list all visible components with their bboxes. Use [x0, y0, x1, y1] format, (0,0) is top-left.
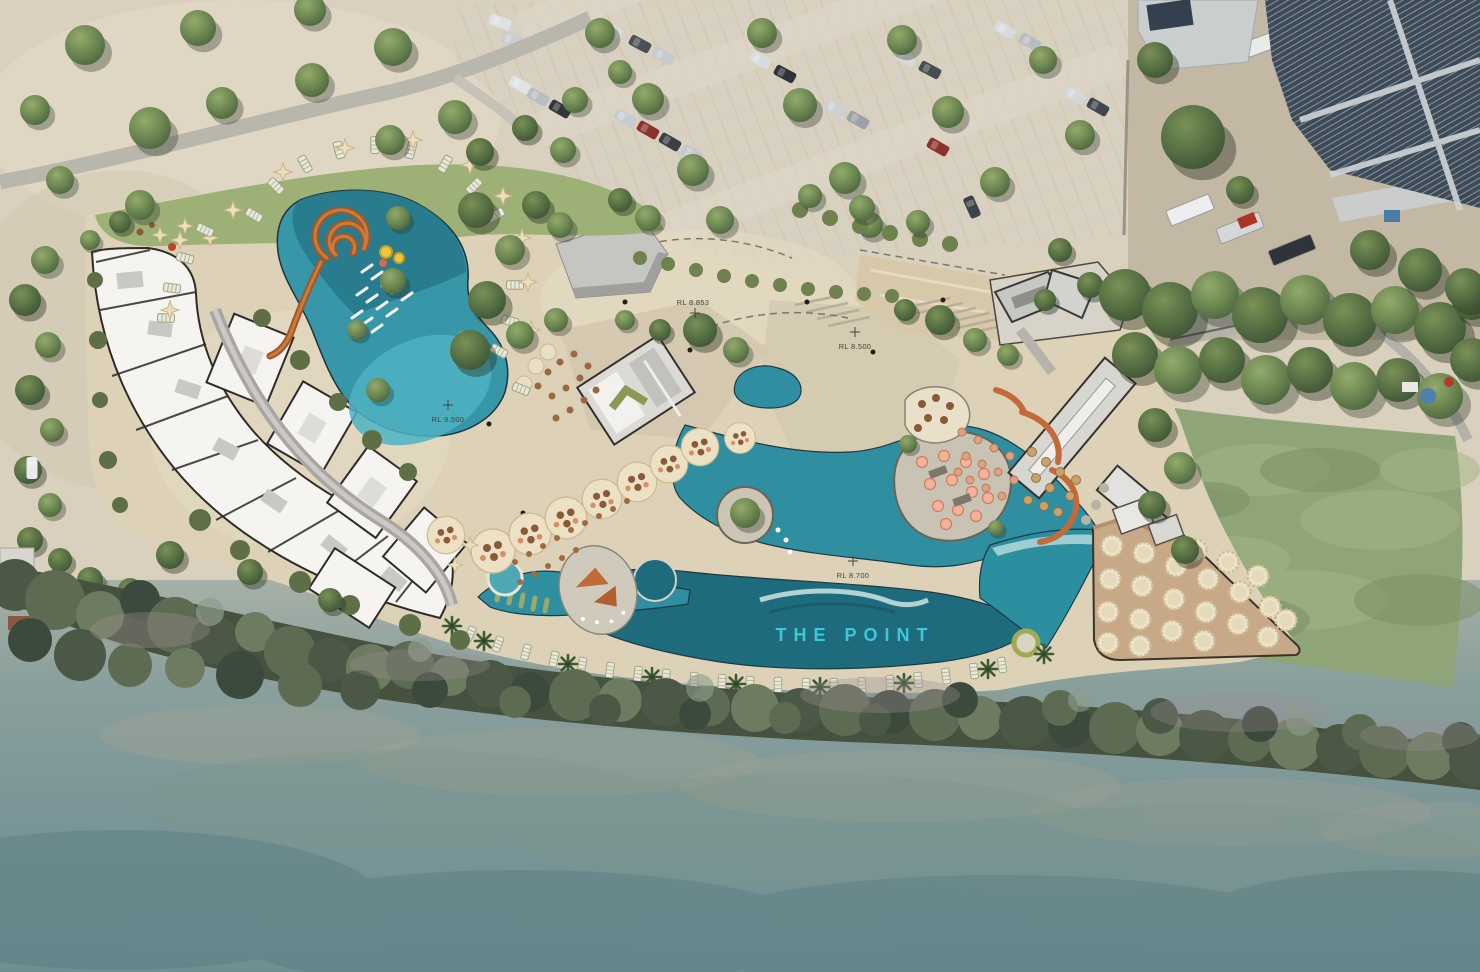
masterplan-aerial-canvas: THE POINT RL 8.853 RL 8.500 RL 9.500 RL … — [0, 0, 1480, 972]
fire-pit-feature — [1014, 631, 1038, 655]
site-name-label: THE POINT — [775, 625, 934, 645]
level-marker-1: RL 8.853 — [677, 298, 710, 307]
level-marker-2: RL 8.500 — [839, 342, 872, 351]
level-marker-3: RL 9.500 — [432, 415, 465, 424]
level-marker-4: RL 8.700 — [837, 571, 870, 580]
plunge-pool — [634, 559, 676, 601]
